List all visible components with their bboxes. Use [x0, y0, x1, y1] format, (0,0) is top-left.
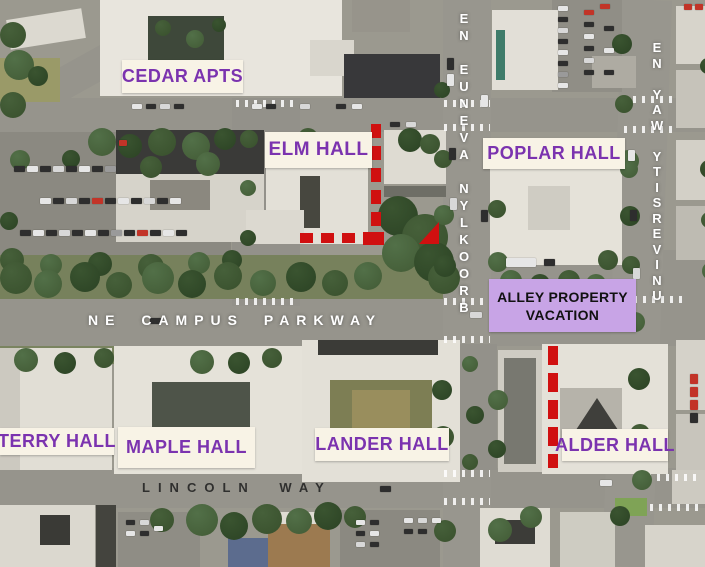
crosswalk	[444, 498, 490, 505]
building	[318, 340, 438, 355]
car	[370, 531, 379, 536]
street-label-letter: L	[455, 214, 473, 231]
car	[481, 95, 488, 107]
building	[676, 414, 705, 474]
car	[558, 72, 568, 77]
alley-property-vacation-callout: ALLEY PROPERTY VACATION	[489, 279, 636, 332]
street-label-letter: V	[455, 129, 473, 146]
car	[558, 28, 568, 33]
car	[404, 529, 413, 534]
street-label-letter: V	[648, 242, 666, 258]
tree	[434, 255, 456, 277]
building	[352, 0, 410, 32]
car	[92, 166, 103, 172]
car	[695, 4, 703, 10]
building-label-cedar-apts: CEDAR APTS	[122, 60, 243, 93]
car	[72, 230, 83, 236]
crosswalk	[444, 336, 490, 343]
tree	[432, 380, 452, 400]
street-label-letter: O	[455, 265, 473, 282]
car	[356, 531, 365, 536]
car	[300, 104, 310, 109]
street-label-letter: N	[648, 273, 666, 289]
tree	[628, 368, 650, 390]
street-label-brooklyn-avenue-ne: EN EUNEVA NYLKOORB	[455, 10, 473, 316]
tree	[286, 262, 316, 292]
car	[690, 374, 698, 384]
car	[336, 104, 346, 109]
crosswalk	[650, 504, 700, 511]
car	[53, 198, 64, 204]
street-label-letter	[648, 71, 666, 87]
car	[33, 230, 44, 236]
car	[600, 480, 612, 486]
tree	[462, 454, 478, 470]
tree	[142, 262, 174, 294]
car	[604, 70, 614, 75]
street-label-letter: E	[455, 61, 473, 78]
alley-vacation-marker-elm-vertical-dashed-line	[371, 124, 381, 234]
street-label-letter	[648, 133, 666, 149]
car	[252, 104, 262, 109]
car	[174, 104, 184, 109]
building-label-lander-hall: LANDER HALL	[315, 428, 449, 461]
car	[690, 387, 698, 397]
building	[496, 30, 505, 80]
street-label-letter	[455, 44, 473, 61]
car	[124, 230, 135, 236]
car	[20, 230, 31, 236]
car	[628, 150, 635, 161]
tree	[14, 348, 38, 372]
building-label-poplar-hall: POPLAR HALL	[483, 138, 625, 169]
car	[418, 529, 427, 534]
car	[558, 83, 568, 88]
street-label-letter: N	[455, 27, 473, 44]
tree	[488, 390, 508, 410]
building	[40, 515, 70, 545]
car	[604, 48, 614, 53]
street-label-letter: S	[648, 195, 666, 211]
car	[126, 520, 135, 525]
alley-vacation-marker-red-triangle	[419, 222, 439, 244]
car	[46, 230, 57, 236]
tree	[34, 270, 62, 298]
alley-vacation-marker-elm-horizontal-dashed-line	[300, 233, 364, 243]
street-label-letter: K	[455, 231, 473, 248]
car	[160, 104, 170, 109]
car	[558, 17, 568, 22]
car	[150, 230, 161, 236]
street-label-letter: B	[455, 299, 473, 316]
building	[96, 505, 116, 567]
building-label-terry-hall: TERRY HALL	[0, 428, 114, 455]
tree	[140, 156, 162, 178]
street-label-letter: U	[455, 78, 473, 95]
building	[645, 525, 705, 567]
tree	[240, 180, 256, 196]
building	[676, 6, 705, 64]
car	[584, 70, 594, 75]
car	[380, 486, 391, 492]
car	[105, 166, 116, 172]
tree	[196, 152, 220, 176]
car	[146, 104, 156, 109]
car	[432, 518, 441, 523]
street-label-letter: N	[455, 180, 473, 197]
tree	[488, 200, 506, 218]
tree	[322, 270, 348, 296]
tree	[155, 20, 171, 36]
building-label-maple-hall: MAPLE HALL	[118, 427, 255, 468]
tree	[148, 128, 176, 156]
car	[447, 58, 454, 70]
car	[27, 166, 38, 172]
street-label-ne-campus-parkway: NE CAMPUS PARKWAY	[88, 312, 382, 328]
street-label-letter: R	[455, 282, 473, 299]
car	[544, 259, 555, 266]
street-label-letter: T	[648, 164, 666, 180]
tree	[598, 250, 618, 270]
car	[584, 46, 594, 51]
street-label-letter: I	[648, 180, 666, 196]
crosswalk	[444, 470, 490, 477]
car	[111, 230, 122, 236]
tree	[220, 512, 248, 540]
alley-vacation-marker-elm-corner-segment	[363, 232, 384, 245]
street-label-letter: R	[648, 211, 666, 227]
street-label-lincoln-way: LINCOLN WAY	[142, 480, 332, 495]
car	[140, 531, 149, 536]
tree	[228, 352, 250, 374]
building-label-elm-hall: ELM HALL	[265, 132, 372, 168]
tree	[610, 506, 630, 526]
street-label-letter: E	[648, 40, 666, 56]
car	[604, 26, 614, 31]
tree	[118, 134, 142, 158]
car	[390, 122, 400, 127]
car	[85, 230, 96, 236]
car	[163, 230, 174, 236]
street-label-letter: Y	[648, 87, 666, 103]
tree	[0, 92, 26, 118]
building	[504, 358, 536, 464]
tree	[466, 406, 484, 424]
car	[506, 258, 536, 267]
callout-line-1: ALLEY PROPERTY	[497, 288, 628, 306]
tree	[214, 128, 236, 150]
campus-aerial-map: EN EUNEVA NYLKOORB EN YAW YTISREVINU NE …	[0, 0, 705, 567]
street-label-letter: E	[455, 112, 473, 129]
tree	[262, 348, 282, 368]
street-label-letter: E	[455, 10, 473, 27]
car	[59, 230, 70, 236]
car	[105, 198, 116, 204]
building	[560, 512, 615, 567]
car	[406, 122, 416, 127]
street-label-university-way-ne: EN YAW YTISREVINU	[648, 40, 666, 304]
car	[481, 210, 488, 222]
tree	[186, 30, 204, 48]
car	[600, 4, 610, 9]
street-label-letter: A	[648, 102, 666, 118]
car	[370, 520, 379, 525]
street-label-letter: U	[648, 288, 666, 304]
tree	[398, 128, 422, 152]
callout-line-2: VACATION	[526, 306, 599, 324]
building	[344, 54, 440, 98]
tree	[488, 518, 512, 542]
building	[528, 186, 570, 230]
car	[684, 4, 692, 10]
tree	[488, 252, 508, 272]
street-label-letter: A	[455, 146, 473, 163]
tree	[520, 506, 542, 528]
tree	[240, 230, 256, 246]
car	[144, 198, 155, 204]
building	[228, 538, 270, 567]
car	[558, 39, 568, 44]
tree	[186, 504, 218, 536]
tree	[0, 212, 18, 230]
car	[176, 230, 187, 236]
street-label-letter: N	[648, 56, 666, 72]
car	[118, 198, 129, 204]
street-label-letter: E	[648, 226, 666, 242]
street-label-letter: N	[455, 95, 473, 112]
car	[447, 74, 454, 86]
building	[384, 186, 446, 197]
car	[40, 198, 51, 204]
street-label-letter: Y	[648, 149, 666, 165]
car	[558, 50, 568, 55]
car	[584, 10, 594, 15]
car	[119, 140, 127, 146]
car	[584, 58, 594, 63]
crosswalk	[236, 298, 296, 305]
tree	[88, 128, 116, 156]
car	[558, 6, 568, 11]
tree	[612, 34, 632, 54]
tree	[252, 504, 282, 534]
street-label-letter: I	[648, 257, 666, 273]
car	[132, 104, 142, 109]
tree	[286, 508, 312, 534]
car	[137, 230, 148, 236]
tree	[615, 95, 633, 113]
tree	[488, 440, 506, 458]
car	[633, 268, 640, 279]
car	[154, 526, 163, 531]
car	[352, 104, 362, 109]
street-label-letter: W	[648, 118, 666, 134]
car	[140, 520, 149, 525]
car	[79, 166, 90, 172]
tree	[94, 348, 114, 368]
car	[690, 400, 698, 410]
tree	[354, 262, 382, 290]
building	[676, 206, 705, 260]
car	[356, 542, 365, 547]
car	[418, 518, 427, 523]
car	[53, 166, 64, 172]
car	[584, 34, 594, 39]
tree	[314, 502, 342, 530]
car	[66, 166, 77, 172]
car	[126, 531, 135, 536]
building	[592, 56, 636, 88]
street-label-letter	[455, 163, 473, 180]
building	[150, 180, 210, 210]
tree	[0, 22, 26, 48]
tree	[0, 262, 32, 294]
car	[157, 198, 168, 204]
tree	[70, 262, 100, 292]
car	[584, 22, 594, 27]
car	[558, 61, 568, 66]
tree	[190, 350, 214, 374]
tree	[212, 18, 226, 32]
car	[79, 198, 90, 204]
car	[170, 198, 181, 204]
car	[98, 230, 109, 236]
car	[356, 520, 365, 525]
tree	[434, 520, 456, 542]
tree	[178, 270, 206, 298]
car	[266, 104, 276, 109]
tree	[240, 130, 258, 148]
street-label-letter: O	[455, 248, 473, 265]
car	[630, 210, 637, 221]
car	[131, 198, 142, 204]
crosswalk	[648, 474, 698, 481]
tree	[250, 270, 276, 296]
tree	[214, 262, 242, 290]
car	[404, 518, 413, 523]
building	[676, 70, 705, 128]
street-label-letter: Y	[455, 197, 473, 214]
car	[66, 198, 77, 204]
car	[690, 413, 698, 423]
car	[14, 166, 25, 172]
car	[370, 542, 379, 547]
car	[40, 166, 51, 172]
building-label-alder-hall: ALDER HALL	[562, 429, 668, 461]
tree	[632, 470, 652, 490]
tree	[28, 66, 48, 86]
tree	[106, 272, 132, 298]
tree	[54, 352, 76, 374]
car	[92, 198, 103, 204]
tree	[462, 356, 478, 372]
